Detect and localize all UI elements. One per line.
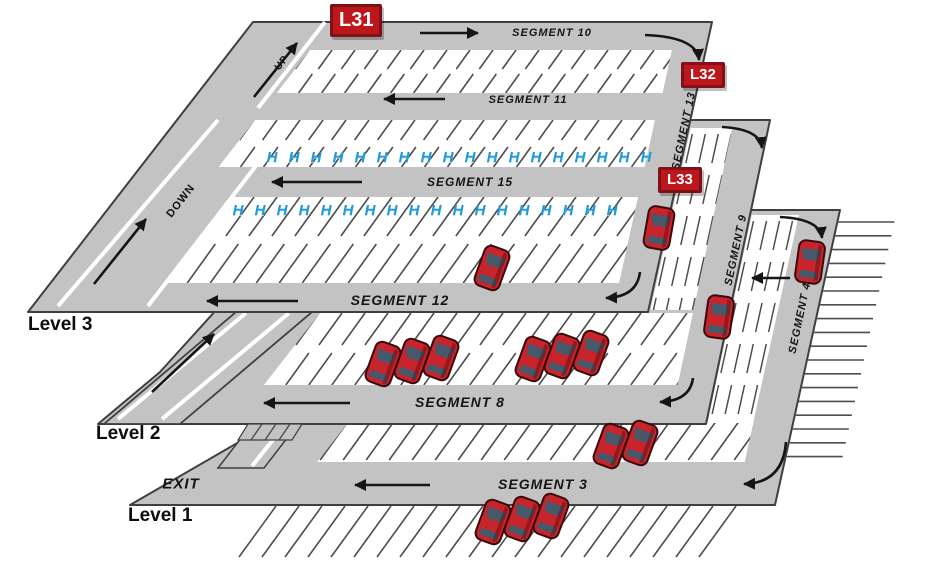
accessible-spaces-row-upper: HHHHHHHHHHHHHHHHHH xyxy=(261,149,657,166)
car xyxy=(794,239,826,284)
accessible-space-marker: H xyxy=(425,202,447,219)
accessible-space-marker: H xyxy=(491,202,513,219)
accessible-space-marker: H xyxy=(525,149,547,166)
accessible-space-marker: H xyxy=(547,149,569,166)
segment-3-label: SEGMENT 3 xyxy=(498,476,588,492)
parking-structure-drawing xyxy=(0,0,930,575)
segment-11-label: SEGMENT 11 xyxy=(489,94,568,106)
accessible-space-marker: H xyxy=(469,202,491,219)
accessible-space-marker: H xyxy=(513,202,535,219)
segment-10-label: SEGMENT 10 xyxy=(512,27,592,39)
exit-label: EXIT xyxy=(162,476,199,493)
parking-structure-diagram: L31 L32 L33 SEGMENT 10 SEGMENT 11 SEGMEN… xyxy=(0,0,930,575)
accessible-space-marker: H xyxy=(437,149,459,166)
accessible-space-marker: H xyxy=(415,149,437,166)
segment-15-label: SEGMENT 15 xyxy=(427,175,513,189)
accessible-space-marker: H xyxy=(305,149,327,166)
accessible-space-marker: H xyxy=(261,149,283,166)
level-3-label: Level 3 xyxy=(28,314,92,336)
accessible-space-marker: H xyxy=(557,202,579,219)
accessible-space-marker: H xyxy=(381,202,403,219)
segment-8-label: SEGMENT 8 xyxy=(415,394,505,410)
accessible-space-marker: H xyxy=(337,202,359,219)
car xyxy=(703,294,735,339)
accessible-space-marker: H xyxy=(601,202,623,219)
level-3-deck xyxy=(28,22,749,312)
accessible-space-marker: H xyxy=(459,149,481,166)
accessible-space-marker: H xyxy=(271,202,293,219)
accessible-space-marker: H xyxy=(349,149,371,166)
accessible-space-marker: H xyxy=(327,149,349,166)
accessible-space-marker: H xyxy=(503,149,525,166)
accessible-space-marker: H xyxy=(579,202,601,219)
accessible-space-marker: H xyxy=(315,202,337,219)
accessible-space-marker: H xyxy=(227,202,249,219)
accessible-space-marker: H xyxy=(403,202,425,219)
accessible-space-marker: H xyxy=(283,149,305,166)
accessible-space-marker: H xyxy=(591,149,613,166)
location-badge-l31: L31 xyxy=(330,4,382,37)
accessible-space-marker: H xyxy=(393,149,415,166)
accessible-space-marker: H xyxy=(447,202,469,219)
location-badge-l32: L32 xyxy=(681,62,725,88)
accessible-spaces-row-lower: HHHHHHHHHHHHHHHHHH xyxy=(227,202,623,219)
accessible-space-marker: H xyxy=(613,149,635,166)
segment-12-label: SEGMENT 12 xyxy=(351,292,450,308)
accessible-space-marker: H xyxy=(481,149,503,166)
accessible-space-marker: H xyxy=(569,149,591,166)
accessible-space-marker: H xyxy=(249,202,271,219)
location-badge-l33: L33 xyxy=(658,167,702,193)
level-1-label: Level 1 xyxy=(128,505,192,527)
accessible-space-marker: H xyxy=(635,149,657,166)
accessible-space-marker: H xyxy=(371,149,393,166)
accessible-space-marker: H xyxy=(293,202,315,219)
level-2-label: Level 2 xyxy=(96,423,160,445)
accessible-space-marker: H xyxy=(535,202,557,219)
accessible-space-marker: H xyxy=(359,202,381,219)
